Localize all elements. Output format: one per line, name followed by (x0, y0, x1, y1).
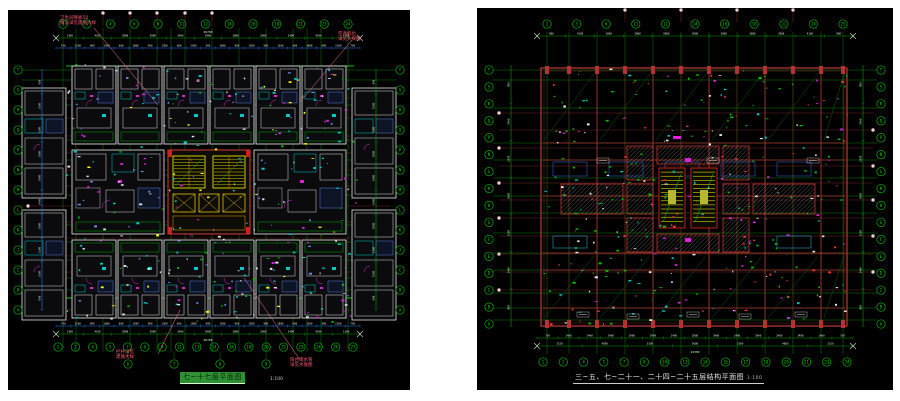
svg-text:900: 900 (859, 82, 863, 87)
svg-text:12: 12 (663, 22, 668, 27)
svg-text:P: P (488, 135, 491, 140)
svg-text:4: 4 (582, 360, 585, 365)
svg-text:24: 24 (316, 345, 321, 350)
svg-text:6: 6 (605, 22, 608, 27)
svg-text:16: 16 (722, 22, 727, 27)
left-plan-title: 七~十七层平面图 (180, 372, 245, 384)
svg-text:2800: 2800 (122, 34, 129, 38)
svg-text:5300: 5300 (647, 342, 654, 346)
svg-text:A: A (488, 322, 491, 327)
svg-text:4100: 4100 (577, 32, 584, 36)
svg-text:2400: 2400 (372, 174, 376, 181)
svg-text:26: 26 (333, 345, 338, 350)
svg-text:1800: 1800 (38, 150, 42, 157)
right-plan-title-text: 三~五、七~二十一、二十四~二十五层结构平面图 (575, 373, 744, 381)
svg-text:6: 6 (127, 362, 130, 367)
svg-text:18: 18 (764, 360, 769, 365)
svg-text:B: B (17, 288, 20, 293)
svg-text:7: 7 (623, 360, 626, 365)
svg-text:900: 900 (507, 305, 511, 310)
svg-text:2900: 2900 (260, 34, 267, 38)
svg-text:L: L (399, 208, 402, 213)
svg-text:3: 3 (575, 22, 578, 27)
svg-text:750: 750 (545, 334, 550, 338)
svg-text:18: 18 (752, 22, 757, 27)
svg-text:900: 900 (836, 32, 841, 36)
svg-text:Q: Q (17, 128, 20, 133)
svg-text:600: 600 (372, 295, 376, 300)
svg-text:R: R (880, 101, 883, 106)
svg-text:D: D (488, 271, 491, 276)
svg-text:2400: 2400 (859, 118, 863, 125)
svg-text:900: 900 (321, 44, 326, 48)
svg-text:900: 900 (264, 44, 269, 48)
svg-text:Q: Q (880, 118, 883, 123)
svg-text:2100: 2100 (372, 246, 376, 253)
svg-text:R: R (488, 101, 491, 106)
svg-text:750: 750 (61, 322, 66, 326)
svg-text:N: N (488, 152, 491, 157)
architectural-plan-panel: 1300410028002900240029002800290024004100… (8, 10, 410, 390)
svg-text:16: 16 (723, 360, 728, 365)
svg-text:H: H (488, 203, 491, 208)
svg-text:900: 900 (859, 305, 863, 310)
svg-text:2: 2 (74, 345, 77, 350)
svg-text:3300: 3300 (859, 230, 863, 237)
svg-text:S: S (17, 88, 20, 93)
svg-text:2400: 2400 (587, 334, 594, 338)
svg-text:2150: 2150 (827, 342, 834, 346)
svg-text:2100: 2100 (372, 126, 376, 133)
svg-text:2400: 2400 (713, 334, 720, 338)
svg-text:2900: 2900 (205, 330, 212, 334)
svg-text:S: S (399, 88, 402, 93)
svg-text:16: 16 (251, 22, 256, 27)
svg-text:900: 900 (148, 322, 153, 326)
svg-text:1: 1 (57, 345, 60, 350)
svg-text:2400: 2400 (507, 118, 511, 125)
svg-text:21: 21 (804, 360, 809, 365)
svg-text:900: 900 (206, 44, 211, 48)
svg-text:R: R (17, 108, 20, 113)
svg-text:3300: 3300 (507, 230, 511, 237)
svg-text:1800: 1800 (306, 44, 313, 48)
svg-text:14: 14 (693, 22, 698, 27)
svg-text:900: 900 (90, 44, 95, 48)
svg-text:L: L (488, 169, 491, 174)
svg-text:M: M (399, 188, 402, 193)
svg-text:1500: 1500 (306, 322, 313, 326)
svg-text:2900: 2900 (692, 334, 699, 338)
svg-text:G: G (488, 220, 491, 225)
svg-text:2100: 2100 (75, 322, 82, 326)
svg-text:2900: 2900 (150, 330, 157, 334)
svg-text:750: 750 (350, 322, 355, 326)
svg-text:600: 600 (235, 322, 240, 326)
svg-text:5: 5 (109, 345, 112, 350)
svg-text:4100: 4100 (315, 34, 322, 38)
svg-text:600: 600 (119, 322, 124, 326)
svg-text:14: 14 (227, 22, 232, 27)
svg-text:2: 2 (562, 360, 565, 365)
svg-text:600: 600 (38, 295, 42, 300)
svg-text:2900: 2900 (150, 34, 157, 38)
svg-text:2400: 2400 (859, 267, 863, 274)
svg-text:2400: 2400 (38, 174, 42, 181)
svg-text:600: 600 (293, 44, 298, 48)
svg-text:18: 18 (274, 22, 279, 27)
svg-text:750: 750 (61, 44, 66, 48)
svg-text:2100: 2100 (335, 44, 342, 48)
svg-text:1500: 1500 (132, 322, 139, 326)
svg-text:24300: 24300 (690, 350, 699, 354)
svg-text:24: 24 (346, 22, 351, 27)
svg-text:8: 8 (144, 345, 147, 350)
svg-text:F: F (880, 237, 883, 242)
svg-text:Q: Q (488, 118, 491, 123)
svg-text:26700: 26700 (203, 30, 212, 34)
svg-text:T: T (488, 68, 491, 73)
svg-text:A: A (17, 308, 20, 313)
svg-text:4100: 4100 (315, 330, 322, 334)
svg-text:L: L (880, 169, 883, 174)
svg-text:1: 1 (542, 360, 545, 365)
svg-text:2400: 2400 (177, 330, 184, 334)
svg-text:2100: 2100 (75, 44, 82, 48)
svg-text:10: 10 (662, 360, 667, 365)
structural-plan-drawing: 9004100280028002800300028002800280041009… (477, 8, 893, 390)
svg-text:20: 20 (264, 345, 269, 350)
svg-text:P: P (880, 135, 883, 140)
svg-text:600: 600 (38, 79, 42, 84)
svg-text:2800: 2800 (233, 330, 240, 334)
svg-text:B: B (488, 305, 491, 310)
svg-text:17: 17 (743, 360, 748, 365)
svg-text:N: N (17, 168, 20, 173)
svg-text:M: M (17, 188, 20, 193)
svg-text:750: 750 (350, 44, 355, 48)
svg-text:S: S (488, 84, 491, 89)
svg-text:8: 8 (219, 362, 222, 367)
svg-text:B: B (399, 288, 402, 293)
svg-text:Q: Q (399, 128, 402, 133)
svg-text:2400: 2400 (372, 198, 376, 205)
svg-text:1: 1 (546, 22, 549, 27)
svg-text:4: 4 (91, 345, 94, 350)
svg-text:900: 900 (321, 322, 326, 326)
svg-text:2900: 2900 (260, 330, 267, 334)
svg-text:2800: 2800 (233, 34, 240, 38)
svg-text:2900: 2900 (629, 334, 636, 338)
svg-text:11: 11 (179, 22, 184, 27)
svg-text:900: 900 (507, 82, 511, 87)
svg-text:2800: 2800 (749, 32, 756, 36)
svg-text:4800: 4800 (782, 342, 789, 346)
note-bottom-right: 阳台雨水管 详见水施图 (290, 358, 360, 369)
svg-text:1500: 1500 (38, 102, 42, 109)
svg-text:A: A (399, 308, 402, 313)
svg-text:S: S (880, 84, 883, 89)
svg-text:600: 600 (119, 44, 124, 48)
svg-text:T: T (880, 68, 883, 73)
svg-text:E: E (880, 254, 883, 259)
left-plan-scale: 1:100 (270, 377, 283, 382)
svg-text:2800: 2800 (721, 32, 728, 36)
svg-text:20: 20 (784, 360, 789, 365)
svg-text:600: 600 (177, 322, 182, 326)
svg-text:K: K (880, 186, 883, 191)
svg-text:2900: 2900 (755, 334, 762, 338)
svg-text:L: L (17, 208, 20, 213)
svg-text:7: 7 (126, 345, 129, 350)
svg-text:900: 900 (549, 32, 554, 36)
svg-text:K: K (399, 228, 402, 233)
svg-text:3300: 3300 (859, 155, 863, 162)
svg-text:4100: 4100 (94, 330, 101, 334)
svg-text:3000: 3000 (507, 192, 511, 199)
svg-text:2400: 2400 (288, 330, 295, 334)
svg-text:11: 11 (633, 22, 638, 27)
svg-text:K: K (488, 186, 491, 191)
svg-text:R: R (399, 108, 402, 113)
svg-text:F: F (488, 237, 491, 242)
svg-text:2800: 2800 (634, 32, 641, 36)
svg-text:5600: 5600 (692, 342, 699, 346)
svg-text:3000: 3000 (692, 32, 699, 36)
svg-text:1400: 1400 (565, 334, 572, 338)
svg-text:7: 7 (173, 362, 176, 367)
svg-text:1500: 1500 (277, 44, 284, 48)
svg-text:1800: 1800 (219, 44, 226, 48)
page: { "page": { "background": "#ffffff", "de… (0, 0, 900, 401)
svg-text:21: 21 (298, 22, 303, 27)
svg-text:8: 8 (157, 22, 160, 27)
svg-text:E: E (488, 254, 491, 259)
svg-text:1800: 1800 (372, 222, 376, 229)
svg-text:23: 23 (824, 360, 829, 365)
svg-text:3300: 3300 (507, 155, 511, 162)
svg-text:2400: 2400 (177, 34, 184, 38)
svg-text:1800: 1800 (38, 222, 42, 229)
svg-text:900: 900 (90, 322, 95, 326)
svg-text:23: 23 (299, 345, 304, 350)
svg-text:2400: 2400 (507, 267, 511, 274)
svg-text:13: 13 (682, 360, 687, 365)
svg-text:27: 27 (351, 345, 356, 350)
svg-text:11: 11 (177, 345, 182, 350)
svg-text:1800: 1800 (190, 322, 197, 326)
svg-text:2100: 2100 (335, 322, 342, 326)
svg-text:1500: 1500 (38, 270, 42, 277)
svg-text:4100: 4100 (807, 32, 814, 36)
svg-text:2400: 2400 (608, 334, 615, 338)
svg-text:J: J (399, 248, 401, 253)
svg-text:2800: 2800 (663, 32, 670, 36)
svg-text:N: N (880, 152, 883, 157)
svg-text:2400: 2400 (734, 334, 741, 338)
right-plan-title: 三~五、七~二十一、二十四~二十五层结构平面图 1:100 (573, 372, 764, 384)
svg-text:900: 900 (264, 322, 269, 326)
svg-text:P: P (399, 148, 402, 153)
svg-text:K: K (17, 228, 20, 233)
stair-core (168, 150, 250, 234)
svg-text:25: 25 (841, 22, 846, 27)
svg-text:1500: 1500 (190, 44, 197, 48)
svg-text:1200: 1200 (248, 322, 255, 326)
svg-text:2900: 2900 (205, 34, 212, 38)
svg-text:21: 21 (781, 22, 786, 27)
svg-text:9: 9 (265, 362, 268, 367)
svg-text:C: C (399, 268, 402, 273)
svg-text:23: 23 (322, 22, 327, 27)
svg-text:2400: 2400 (650, 334, 657, 338)
svg-text:1800: 1800 (372, 150, 376, 157)
svg-text:8: 8 (643, 360, 646, 365)
svg-text:600: 600 (235, 44, 240, 48)
svg-text:A: A (880, 322, 883, 327)
svg-text:T: T (17, 68, 20, 73)
note-top-right: 空调机位 详见大样图 (338, 32, 404, 43)
svg-text:1800: 1800 (132, 44, 139, 48)
svg-text:1500: 1500 (104, 44, 111, 48)
right-plan-scale: 1:100 (747, 376, 762, 381)
svg-text:C: C (17, 268, 20, 273)
svg-text:1800: 1800 (277, 322, 284, 326)
svg-text:12: 12 (203, 22, 208, 27)
note-bottom-left: 栏杆详见 建施大样 (116, 350, 176, 361)
svg-text:16: 16 (229, 345, 234, 350)
svg-text:14: 14 (212, 345, 217, 350)
svg-text:1800: 1800 (104, 322, 111, 326)
svg-text:600: 600 (372, 79, 376, 84)
svg-text:1500: 1500 (219, 322, 226, 326)
svg-text:1500: 1500 (372, 102, 376, 109)
svg-text:T: T (399, 68, 402, 73)
svg-text:900: 900 (206, 322, 211, 326)
svg-text:C: C (880, 288, 883, 293)
svg-text:2150: 2150 (556, 342, 563, 346)
svg-text:B: B (880, 305, 883, 310)
svg-text:N: N (399, 168, 402, 173)
svg-text:13: 13 (194, 345, 199, 350)
svg-text:P: P (17, 148, 20, 153)
svg-text:2800: 2800 (606, 32, 613, 36)
svg-text:1200: 1200 (161, 322, 168, 326)
svg-text:1500: 1500 (372, 270, 376, 277)
svg-text:C: C (488, 288, 491, 293)
svg-text:G: G (880, 220, 883, 225)
svg-text:2100: 2100 (38, 126, 42, 133)
svg-text:3000: 3000 (859, 192, 863, 199)
svg-text:750: 750 (840, 334, 845, 338)
architectural-plan-drawing: 1300410028002900240029002800290024004100… (8, 10, 410, 390)
svg-text:D: D (880, 271, 883, 276)
svg-text:2400: 2400 (671, 334, 678, 338)
svg-text:2800: 2800 (778, 32, 785, 36)
shear-wall-core (561, 136, 815, 252)
svg-text:2100: 2100 (38, 246, 42, 253)
svg-text:24: 24 (845, 360, 850, 365)
svg-text:1400: 1400 (818, 334, 825, 338)
note-top-left: 卫生间降板50 做法详见建施大样 (60, 16, 136, 27)
svg-text:4800: 4800 (602, 342, 609, 346)
svg-text:21: 21 (281, 345, 286, 350)
structural-plan-panel: 9004100280028002800300028002800280041009… (477, 8, 893, 390)
svg-text:2400: 2400 (38, 198, 42, 205)
svg-text:26700: 26700 (203, 338, 212, 342)
svg-text:2400: 2400 (776, 334, 783, 338)
svg-text:1300: 1300 (343, 330, 350, 334)
svg-text:2800: 2800 (122, 330, 129, 334)
svg-text:H: H (880, 203, 883, 208)
svg-text:J: J (17, 248, 19, 253)
svg-text:2400: 2400 (797, 334, 804, 338)
svg-text:24: 24 (811, 22, 816, 27)
svg-text:900: 900 (148, 44, 153, 48)
svg-text:1200: 1200 (248, 44, 255, 48)
svg-text:5: 5 (603, 360, 606, 365)
svg-text:1300: 1300 (67, 330, 74, 334)
svg-text:600: 600 (177, 44, 182, 48)
svg-text:1300: 1300 (67, 34, 74, 38)
svg-text:2400: 2400 (288, 34, 295, 38)
left-plan-title-text: 七~十七层平面图 (183, 373, 242, 381)
svg-text:14: 14 (703, 360, 708, 365)
svg-text:600: 600 (293, 322, 298, 326)
svg-text:18: 18 (246, 345, 251, 350)
svg-text:1200: 1200 (161, 44, 168, 48)
svg-text:5300: 5300 (737, 342, 744, 346)
